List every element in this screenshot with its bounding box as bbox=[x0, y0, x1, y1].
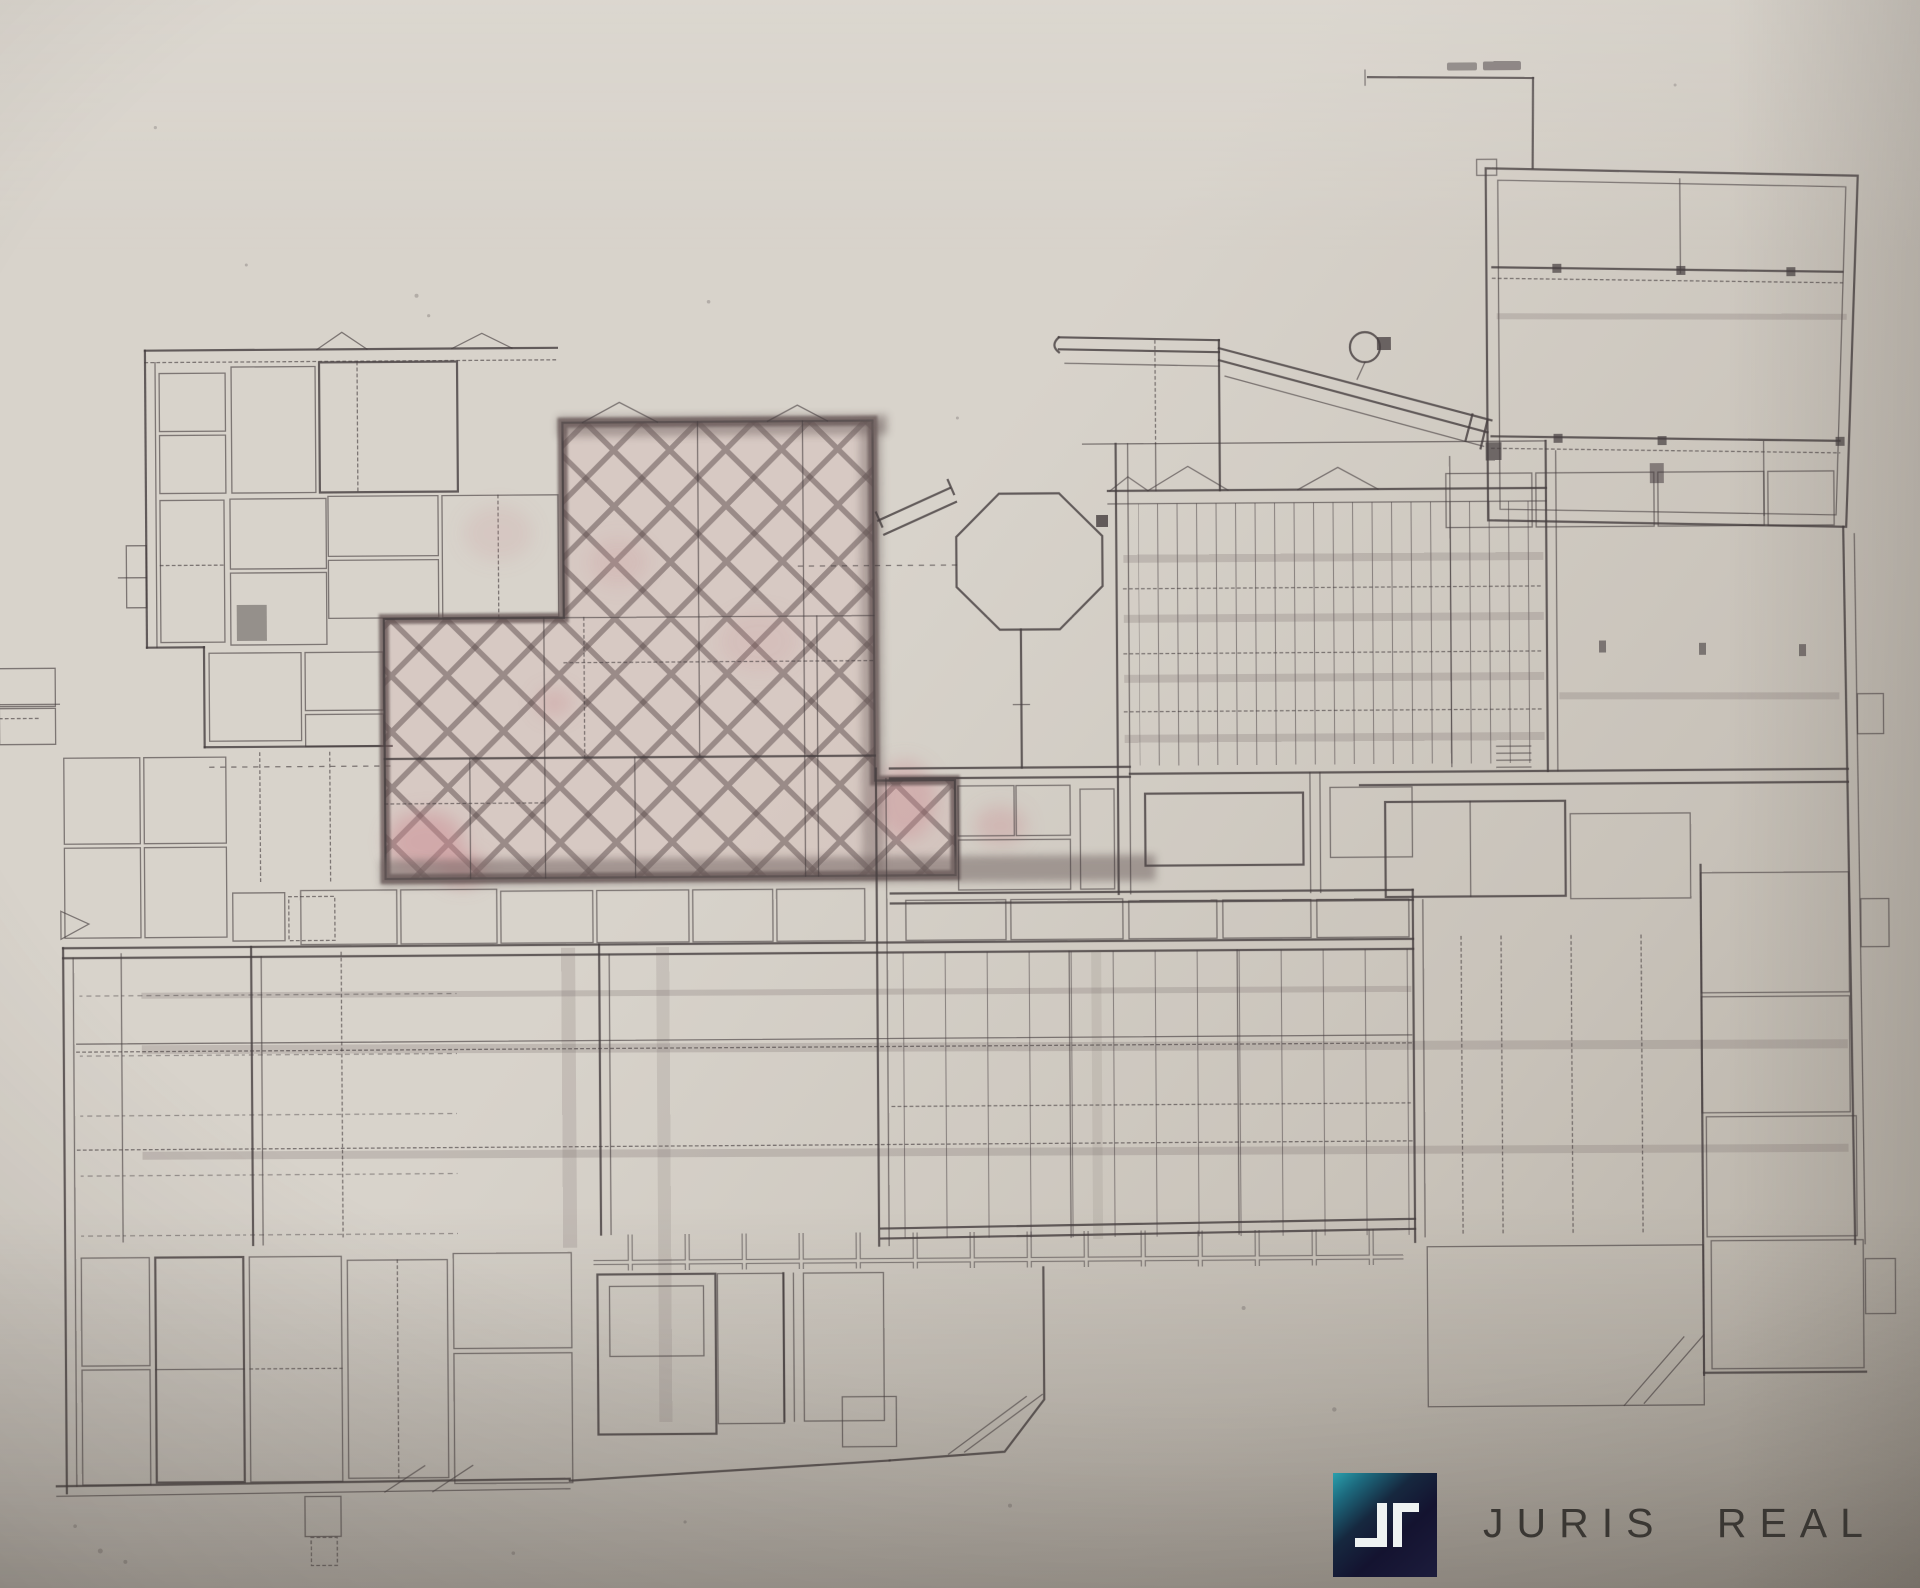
middle-bottom-rooms bbox=[568, 1267, 1044, 1480]
juris-real-logo-mark-icon bbox=[1333, 1473, 1437, 1577]
column-grid-hall bbox=[888, 439, 1849, 896]
north-wing bbox=[1365, 59, 1860, 530]
bottom-left-rooms bbox=[55, 1253, 573, 1568]
juris-real-wordmark: JURIS REAL bbox=[1483, 1500, 1876, 1547]
access-ramp bbox=[1054, 331, 1502, 491]
boundary-annotation bbox=[1365, 61, 1534, 169]
octagon-column bbox=[876, 479, 1110, 769]
floor-plan-drawing bbox=[0, 0, 1920, 1588]
juris-real-logo: JURIS REAL bbox=[1333, 1473, 1876, 1577]
far-left-edge-rooms bbox=[0, 666, 335, 942]
jr-monogram-icon bbox=[1333, 1473, 1437, 1577]
scanned-floorplan-photo: JURIS REAL bbox=[0, 0, 1920, 1588]
highlighted-hatched-zone bbox=[377, 399, 1155, 886]
